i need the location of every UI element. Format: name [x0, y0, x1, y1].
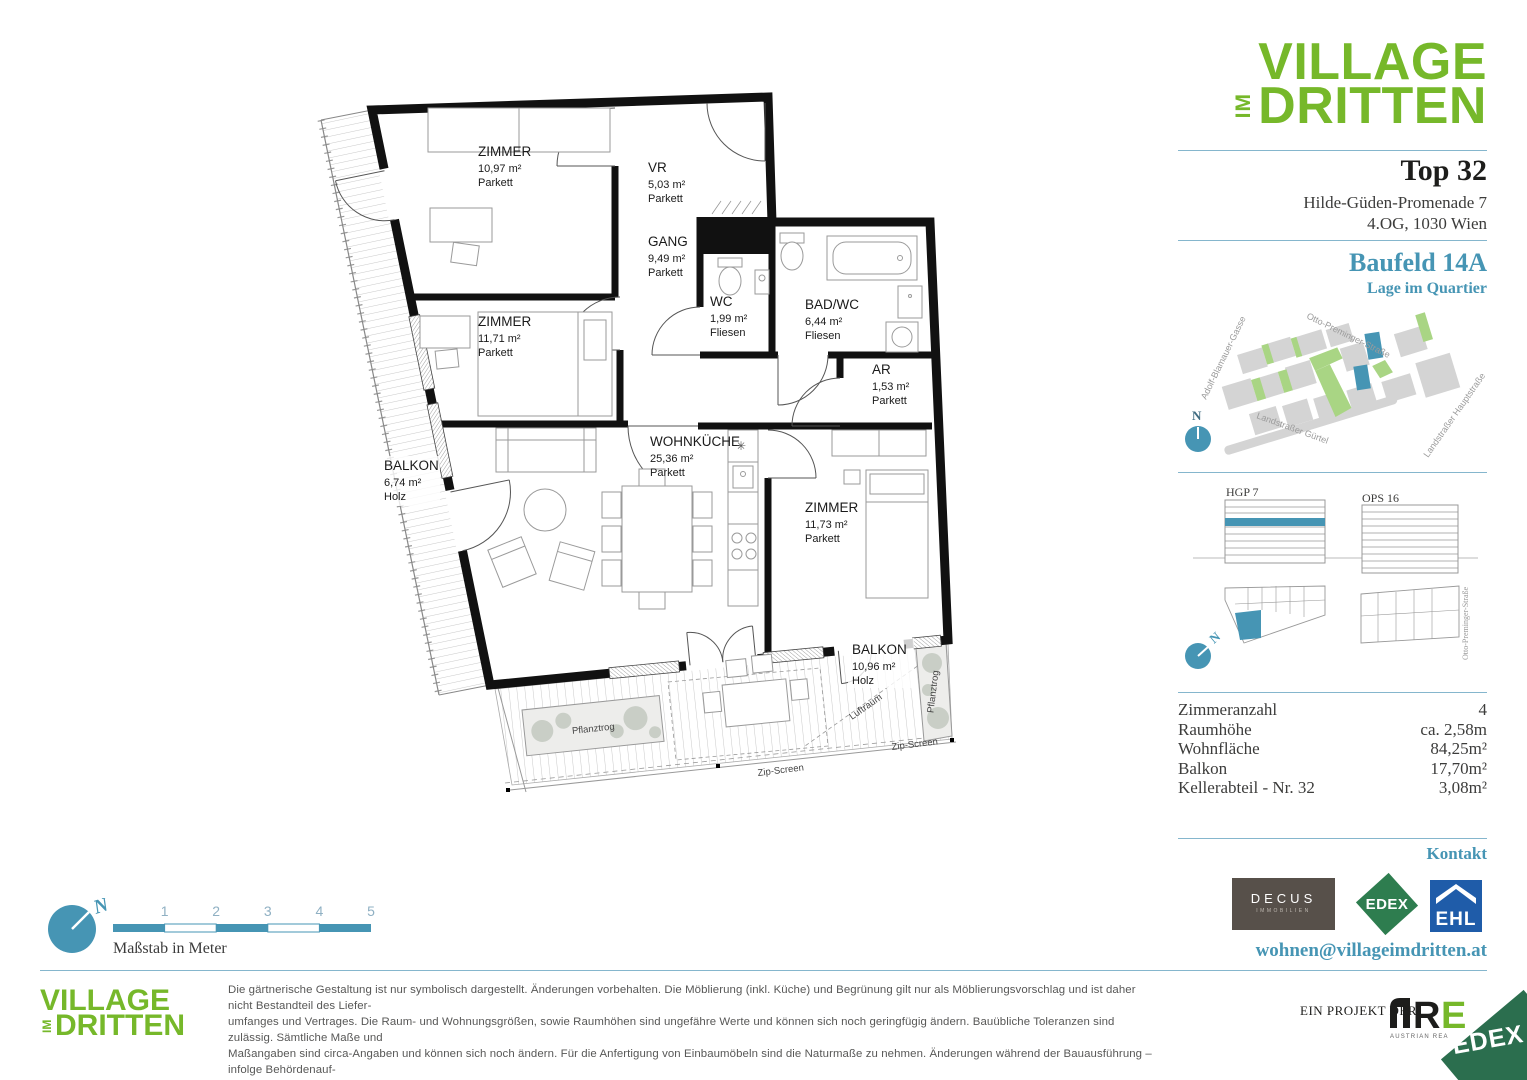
lage-subtitle: Lage im Quartier: [1178, 280, 1487, 298]
decus-name: DECUS: [1232, 878, 1335, 906]
brand-logo-small: VILLAGE IMDRITTEN: [40, 988, 185, 1038]
divider: [1178, 692, 1487, 693]
room-area: 11,71 m²: [478, 333, 521, 345]
kitchen-symbol: ✳: [736, 439, 746, 453]
room-label: GANG: [648, 234, 688, 249]
stat-label: Wohnfläche: [1178, 739, 1260, 759]
are-arch-glyph: [1390, 998, 1410, 1028]
room-label: VR: [648, 160, 667, 175]
room-floor: Parkett: [648, 193, 683, 205]
scale-caption: Maßstab in Meter: [113, 940, 227, 957]
street-otto-preminger-vertical: Otto-Preminger-Straße: [1461, 586, 1470, 660]
room-area: 10,97 m²: [478, 163, 522, 175]
brand-logo: VILLAGE IMDRITTEN: [1178, 40, 1487, 128]
brand-word-im: IM: [35, 1018, 60, 1033]
plate-north-compass: N: [1185, 628, 1224, 669]
decus-logo: DECUS IMMOBILIEN: [1232, 878, 1335, 930]
elevation-hgp7: [1225, 500, 1325, 563]
room-label: WOHNKÜCHE: [650, 434, 740, 449]
room-area: 6,74 m²: [384, 477, 422, 489]
room-floor: Fliesen: [710, 327, 745, 339]
room-area: 25,36 m²: [650, 453, 694, 465]
stat-label: Zimmeranzahl: [1178, 700, 1277, 720]
shaft: [703, 217, 770, 254]
zip-screen-label: Zip-Screen: [757, 762, 804, 779]
stats-row: Kellerabteil - Nr. 323,08m²: [1178, 778, 1487, 798]
room-label: BAD/WC: [805, 297, 859, 312]
stat-value: ca. 2,58m: [1420, 720, 1487, 740]
highlighted-floor: [1225, 518, 1325, 526]
disclaimer-line: Die gärtnerische Gestaltung ist nur symb…: [228, 983, 1153, 1015]
scale-segments: [113, 924, 371, 932]
ehl-logo: EHL: [1430, 880, 1482, 932]
stat-value: 84,25m²: [1430, 739, 1487, 759]
room-label: BALKON: [852, 642, 907, 657]
brand-word-im: IM: [1222, 93, 1266, 119]
elevation-ops16: [1362, 505, 1458, 573]
room-floor: Parkett: [478, 177, 513, 189]
scale-bar: 1 2 3 4 5 Maßstab in Meter: [110, 900, 390, 960]
room-label: WC: [710, 294, 733, 309]
scale-ticks: 1 2 3 4 5: [161, 903, 375, 919]
scale-tick: 1: [161, 903, 169, 919]
room-floor: Holz: [852, 675, 874, 687]
disclaimer-line: umfanges und Vertrages. Die Raum- und Wo…: [228, 1015, 1153, 1047]
stat-label: Balkon: [1178, 759, 1227, 779]
building-right-label: OPS 16: [1362, 491, 1399, 505]
disclaimer-line: Maßangaben sind circa-Angaben und können…: [228, 1047, 1153, 1079]
room-label: AR: [872, 362, 891, 377]
stats-row: Balkon17,70m²: [1178, 759, 1487, 779]
stats-row: Wohnfläche84,25m²: [1178, 739, 1487, 759]
room-area: 10,96 m²: [852, 661, 896, 673]
scale-tick: 3: [264, 903, 272, 919]
room-floor: Parkett: [872, 395, 907, 407]
room-area: 6,44 m²: [805, 316, 843, 328]
floorplate-hgp7: [1225, 586, 1325, 643]
brand-word-dritten: DRITTEN: [1258, 84, 1487, 128]
ehl-wordmark: EHL: [1436, 909, 1477, 930]
address-line1: Hilde-Güden-Promenade 7: [1178, 192, 1487, 213]
north-label: N: [1192, 408, 1202, 423]
edex-logo: EDEX: [1357, 874, 1417, 934]
stats-row: Raumhöheca. 2,58m: [1178, 720, 1487, 740]
floorplate-ops16: [1361, 586, 1459, 643]
room-label: BALKON: [384, 458, 439, 473]
address-line2: 4.OG, 1030 Wien: [1178, 213, 1487, 234]
stat-label: Kellerabteil - Nr. 32: [1178, 778, 1315, 798]
quarter-map: Adolf-Blamauer-Gasse Otto-Preminger-Stra…: [1178, 300, 1488, 462]
footer-divider: [40, 970, 1487, 971]
divider: [1178, 838, 1487, 839]
room-floor: Parkett: [650, 467, 685, 479]
floorplan-sheet: Pflanztrog Pflanztrog: [0, 0, 1527, 1080]
are-letter-r: R: [1413, 995, 1440, 1037]
stat-value: 3,08m²: [1439, 778, 1487, 798]
room-floor: Parkett: [478, 347, 513, 359]
map-north-compass: N: [1185, 408, 1211, 452]
divider: [1178, 472, 1487, 473]
room-label: ZIMMER: [478, 314, 531, 329]
room-label: ZIMMER: [478, 144, 531, 159]
room-area: 9,49 m²: [648, 253, 686, 265]
room-area: 1,53 m²: [872, 381, 910, 393]
stat-value: 4: [1479, 700, 1488, 720]
contact-email-link[interactable]: wohnen@villageimdritten.at: [1178, 940, 1487, 962]
brand-word-dritten: DRITTEN: [55, 1013, 185, 1038]
room-floor: Fliesen: [805, 330, 840, 342]
room-area: 1,99 m²: [710, 313, 748, 325]
unit-stats-table: Zimmeranzahl4 Raumhöheca. 2,58m Wohnfläc…: [1178, 700, 1487, 798]
room-floor: Holz: [384, 491, 406, 503]
room-area: 5,03 m²: [648, 179, 686, 191]
highlighted-unit: [1235, 610, 1261, 640]
are-caption: AUSTRIAN REA: [1390, 1034, 1449, 1040]
north-label: N: [1206, 628, 1223, 646]
room-floor: Parkett: [648, 267, 683, 279]
edex-wordmark: EDEX: [1357, 896, 1417, 913]
building-left-label: HGP 7: [1226, 485, 1259, 499]
scale-tick: 5: [367, 903, 375, 919]
unit-title: Top 32: [1178, 154, 1487, 188]
decus-sub: IMMOBILIEN: [1232, 908, 1335, 914]
scale-tick: 4: [316, 903, 324, 919]
kontakt-heading: Kontakt: [1178, 844, 1487, 864]
room-area: 11,73 m²: [805, 519, 848, 531]
stats-row: Zimmeranzahl4: [1178, 700, 1487, 720]
scale-tick: 2: [212, 903, 220, 919]
building-diagrams: HGP 7 OPS 16: [1178, 482, 1488, 687]
room-floor: Parkett: [805, 533, 840, 545]
room-label: ZIMMER: [805, 500, 858, 515]
baufeld-title: Baufeld 14A: [1178, 248, 1487, 278]
legal-disclaimer: Die gärtnerische Gestaltung ist nur symb…: [228, 983, 1153, 1080]
divider: [1178, 150, 1487, 151]
floorplan-drawing: Pflanztrog Pflanztrog: [300, 78, 970, 823]
stat-value: 17,70m²: [1430, 759, 1487, 779]
stat-label: Raumhöhe: [1178, 720, 1252, 740]
divider: [1178, 240, 1487, 241]
